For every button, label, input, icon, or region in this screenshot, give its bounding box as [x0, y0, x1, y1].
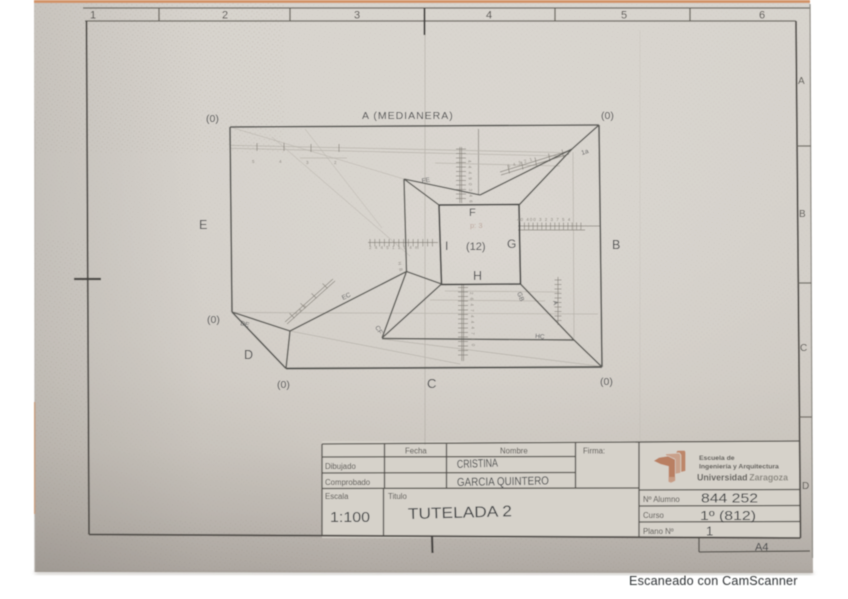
- svg-text:A (MEDIANERA): A (MEDIANERA): [362, 110, 454, 122]
- svg-text:CRISTINA: CRISTINA: [457, 458, 499, 471]
- svg-text:I: I: [445, 239, 448, 253]
- svg-text:4: 4: [279, 159, 283, 164]
- svg-text:H: H: [473, 269, 482, 283]
- svg-text:1: 1: [706, 524, 713, 539]
- svg-text:Universidad Zaragoza: Universidad Zaragoza: [697, 473, 789, 484]
- svg-text:(0): (0): [601, 110, 614, 122]
- svg-text:2 4 4 5 1 1 9 4 m: 2 4 4 5 1 1 9 4 m: [369, 245, 420, 250]
- svg-text:HC: HC: [535, 333, 545, 341]
- svg-text:Comprobado: Comprobado: [325, 478, 371, 487]
- svg-text:Nº Alumno: Nº Alumno: [643, 495, 680, 504]
- svg-text:F: F: [469, 207, 476, 219]
- svg-text:1º (812): 1º (812): [700, 509, 756, 523]
- svg-text:(12): (12): [466, 241, 486, 253]
- svg-text:1:100: 1:100: [330, 510, 370, 526]
- svg-text:(0): (0): [206, 113, 219, 125]
- svg-text:3: 3: [306, 160, 310, 165]
- svg-text:D: D: [244, 348, 253, 362]
- svg-text:GARCIA QUINTERO: GARCIA QUINTERO: [457, 475, 549, 489]
- svg-text:C: C: [800, 343, 807, 354]
- svg-text:2: 2: [334, 160, 338, 165]
- svg-text:Ingeniería y Arquitectura: Ingeniería y Arquitectura: [699, 464, 779, 471]
- svg-text:Curso: Curso: [643, 511, 664, 520]
- svg-text:Escaneado con CamScanner: Escaneado con CamScanner: [629, 574, 798, 588]
- svg-text:2: 2: [222, 10, 228, 22]
- svg-text:D: D: [802, 481, 809, 492]
- svg-text:(0): (0): [207, 314, 220, 326]
- svg-text:C: C: [427, 376, 436, 391]
- svg-text:3: 3: [354, 10, 360, 22]
- svg-text:844 252: 844 252: [701, 491, 758, 506]
- svg-text:1: 1: [90, 10, 96, 22]
- svg-text:G: G: [507, 237, 516, 251]
- svg-text:E: E: [199, 218, 207, 232]
- svg-text:Escuela de: Escuela de: [699, 455, 735, 462]
- svg-text:A: A: [798, 76, 805, 87]
- svg-text:Dibujado: Dibujado: [325, 462, 356, 471]
- svg-text:B: B: [612, 238, 620, 252]
- svg-text:B: B: [799, 209, 806, 220]
- svg-text:p: 3: p: 3: [470, 221, 483, 230]
- svg-text:5: 5: [621, 10, 627, 22]
- svg-text:(0): (0): [600, 376, 613, 388]
- svg-text:4: 4: [486, 10, 492, 22]
- svg-text:TUTELADA 2: TUTELADA 2: [408, 503, 512, 523]
- svg-text:Escala: Escala: [325, 492, 349, 501]
- svg-text:5: 5: [252, 159, 256, 164]
- svg-text:6: 6: [759, 10, 765, 22]
- svg-text:40 400 3 2 3 7 5 4: 40 400 3 2 3 7 5 4: [517, 217, 571, 222]
- svg-text:Titulo: Titulo: [388, 492, 407, 501]
- svg-text:Firma:: Firma:: [583, 447, 605, 456]
- svg-text:Nombre: Nombre: [500, 447, 528, 456]
- svg-text:A4: A4: [755, 542, 768, 554]
- svg-text:Plano Nº: Plano Nº: [643, 527, 674, 536]
- svg-text:Fecha: Fecha: [405, 447, 427, 456]
- svg-text:(0): (0): [277, 379, 290, 391]
